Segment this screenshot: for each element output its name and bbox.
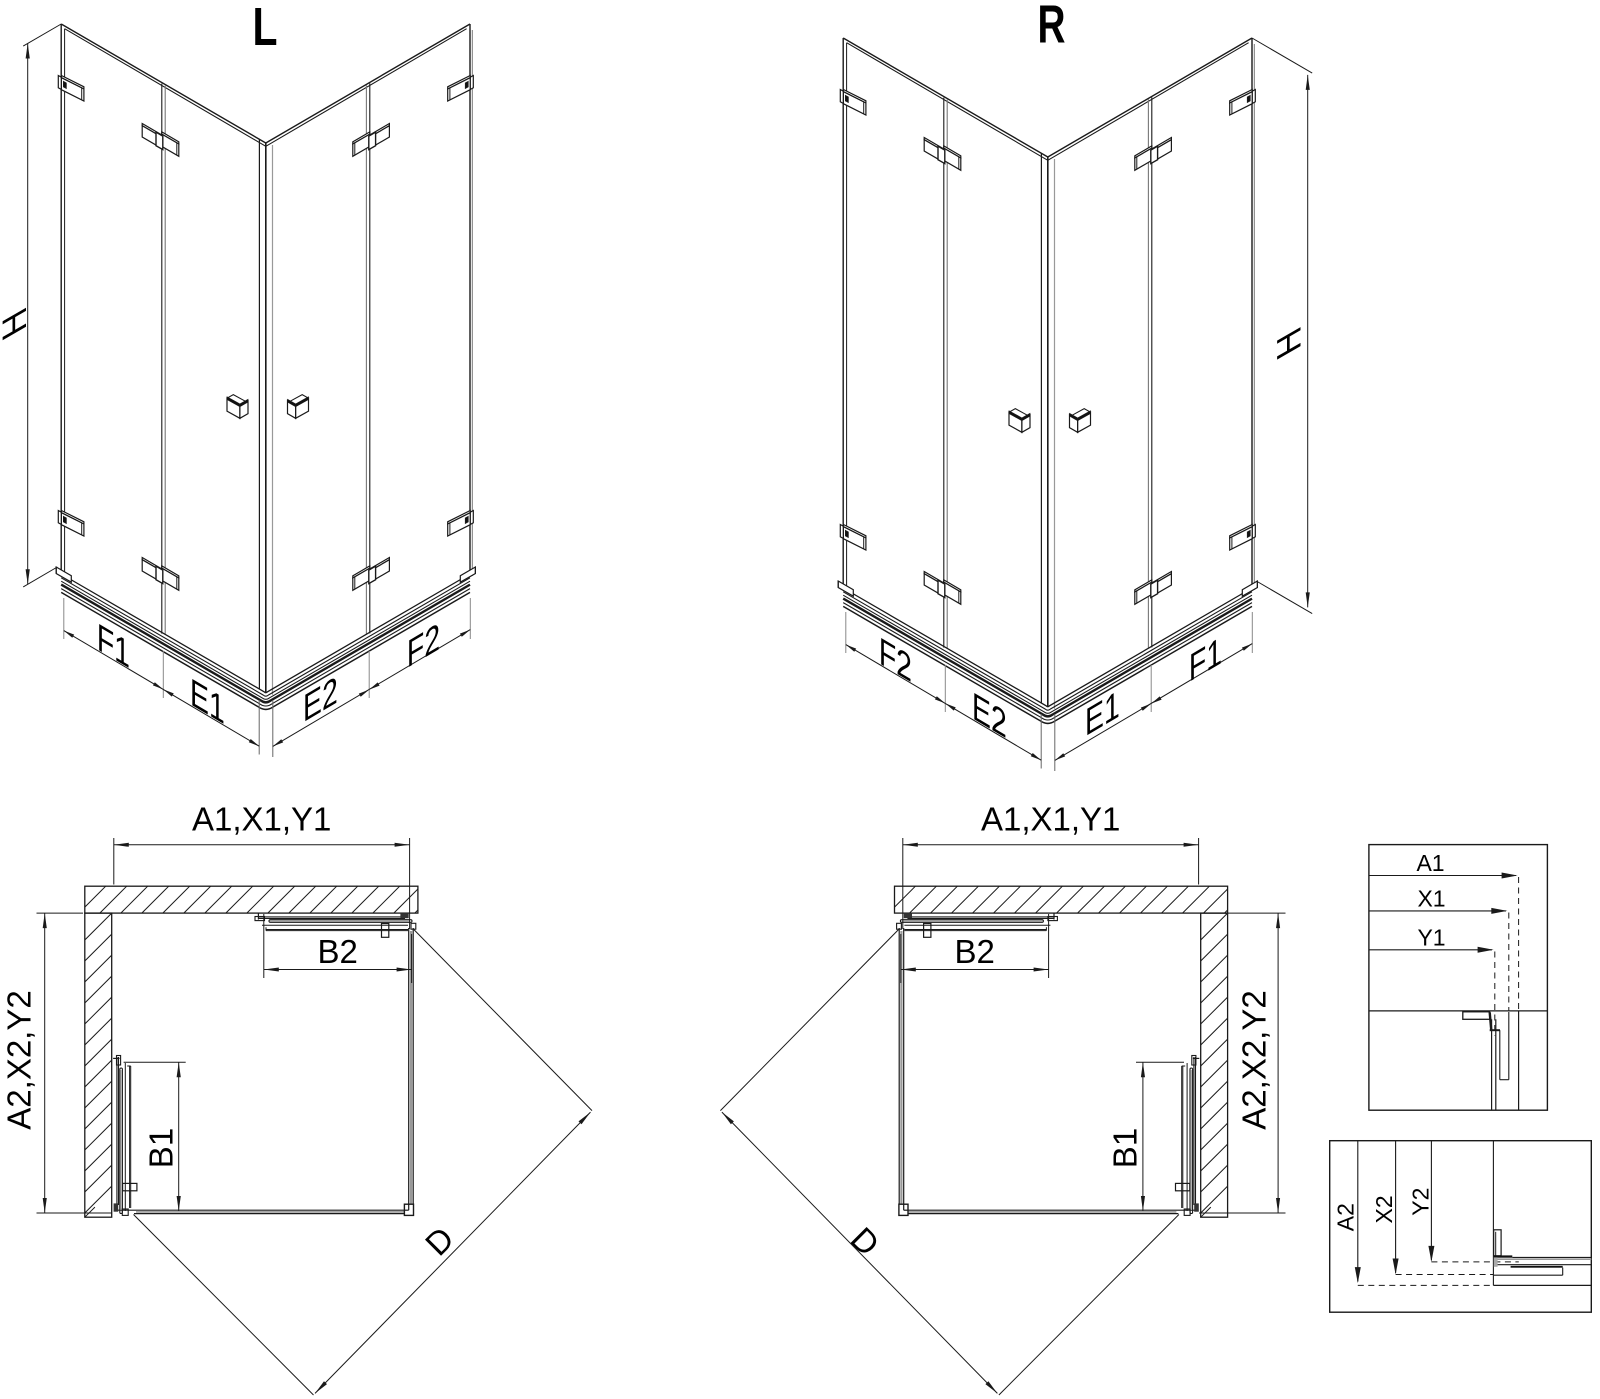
svg-text:B2: B2 — [318, 933, 358, 970]
svg-text:L: L — [253, 0, 278, 57]
svg-text:B1: B1 — [142, 1128, 179, 1168]
svg-text:B1: B1 — [1107, 1128, 1144, 1168]
svg-text:Y2: Y2 — [1408, 1188, 1434, 1216]
svg-text:A2,X2,Y2: A2,X2,Y2 — [1, 990, 38, 1129]
svg-text:A2: A2 — [1333, 1203, 1359, 1231]
svg-text:Y1: Y1 — [1417, 924, 1445, 950]
svg-text:R: R — [1038, 0, 1066, 54]
svg-text:X1: X1 — [1417, 885, 1445, 911]
svg-text:X2: X2 — [1371, 1195, 1397, 1223]
svg-text:A1,X1,Y1: A1,X1,Y1 — [192, 801, 331, 838]
svg-text:B2: B2 — [955, 933, 995, 970]
svg-text:A2,X2,Y2: A2,X2,Y2 — [1236, 990, 1273, 1129]
svg-text:A1: A1 — [1416, 850, 1444, 876]
svg-text:A1,X1,Y1: A1,X1,Y1 — [981, 801, 1120, 838]
